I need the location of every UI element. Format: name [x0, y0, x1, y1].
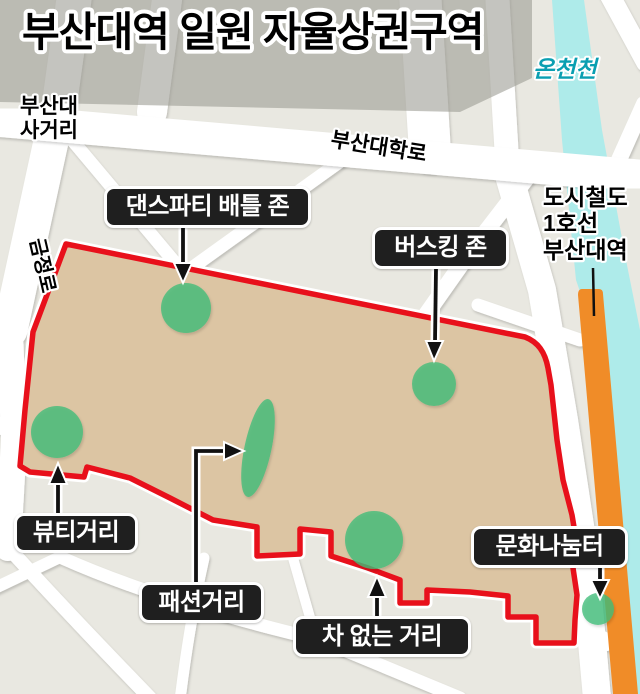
dance-zone-badge: 댄스파티 배틀 존: [104, 186, 311, 228]
beauty-street-badge: 뷰티거리: [14, 513, 138, 553]
intersection-label-line1: 부산대: [20, 95, 78, 118]
subway-label-line3: 부산대역: [543, 237, 628, 263]
subway-label-line1: 도시철도: [543, 184, 628, 210]
busking-zone-circle: [412, 362, 456, 406]
subway-pointer-line: [593, 268, 594, 316]
car-free-street-badge: 차 없는 거리: [293, 616, 471, 657]
fashion-street-badge: 패션거리: [139, 582, 264, 623]
page-title: 부산대역 일원 자율상권구역: [22, 9, 483, 55]
dance-zone-circle: [161, 283, 211, 333]
car-free-street-circle: [345, 511, 403, 569]
beauty-street-circle: [31, 406, 83, 458]
stream-label: 온천천: [533, 56, 599, 82]
subway-label-line2: 1호선: [543, 210, 598, 236]
busking-zone-badge: 버스킹 존: [372, 227, 509, 269]
map-canvas: 부산대역 일원 자율상권구역 부산대 사거리 부산대학로 금정로 온천천 도시철…: [0, 0, 640, 694]
west-edge-street: [8, 330, 14, 548]
culture-space-badge: 문화나눔터: [471, 526, 628, 568]
culture-space-circle: [582, 593, 614, 625]
intersection-label-line2: 사거리: [20, 119, 78, 142]
infographic-map: 부산대역 일원 자율상권구역 부산대 사거리 부산대학로 금정로 온천천 도시철…: [0, 0, 640, 694]
